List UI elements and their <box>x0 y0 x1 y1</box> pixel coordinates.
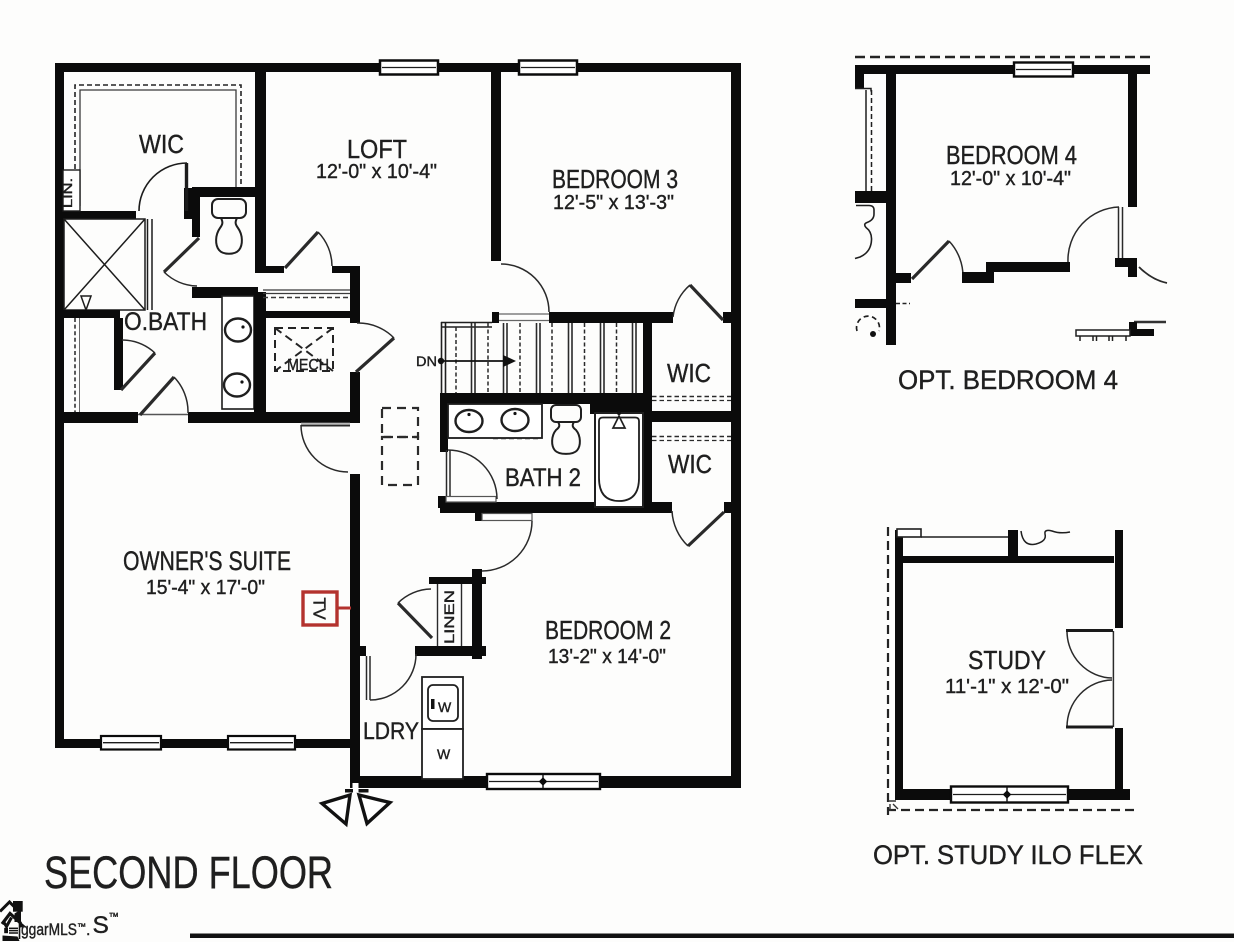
svg-text:LIN.: LIN. <box>63 178 75 208</box>
svg-text:WIC: WIC <box>139 129 184 159</box>
svg-text:O.BATH: O.BATH <box>124 308 207 336</box>
svg-text:BEDROOM 2: BEDROOM 2 <box>545 615 671 645</box>
svg-text:13'-2" x 14'-0": 13'-2" x 14'-0" <box>548 646 666 668</box>
svg-text:LOFT: LOFT <box>347 134 407 164</box>
svg-text:.: . <box>86 922 90 939</box>
svg-text:S: S <box>93 912 109 939</box>
svg-text:15'-4" x 17'-0": 15'-4" x 17'-0" <box>146 577 265 599</box>
svg-text:SECOND FLOOR: SECOND FLOOR <box>44 847 333 898</box>
svg-text:OWNER'S SUITE: OWNER'S SUITE <box>123 546 291 576</box>
svg-text:W: W <box>438 699 452 715</box>
svg-text:BATH 2: BATH 2 <box>505 464 581 492</box>
svg-text:TV: TV <box>310 597 330 620</box>
svg-text:BEDROOM 4: BEDROOM 4 <box>946 140 1077 170</box>
svg-text:OPT. BEDROOM 4: OPT. BEDROOM 4 <box>898 365 1118 395</box>
svg-text:W: W <box>437 746 451 762</box>
svg-text:WIC: WIC <box>668 449 712 479</box>
svg-text:MECH: MECH <box>287 357 329 374</box>
svg-text:™: ™ <box>77 922 86 932</box>
svg-text:DN: DN <box>416 354 437 369</box>
svg-text:12'-5" x 13'-3": 12'-5" x 13'-3" <box>553 192 674 214</box>
svg-text:BEDROOM 3: BEDROOM 3 <box>552 164 678 194</box>
svg-text:ggarMLS: ggarMLS <box>21 921 77 939</box>
svg-text:11'-1" x 12'-0": 11'-1" x 12'-0" <box>945 676 1069 698</box>
svg-text:™: ™ <box>109 911 120 923</box>
svg-text:12'-0" x 10'-4": 12'-0" x 10'-4" <box>950 168 1071 190</box>
svg-text:OPT. STUDY ILO FLEX: OPT. STUDY ILO FLEX <box>873 840 1143 870</box>
svg-text:12'-0" x 10'-4": 12'-0" x 10'-4" <box>316 161 437 183</box>
svg-text:LINEN: LINEN <box>441 590 457 644</box>
svg-text:LDRY: LDRY <box>363 718 419 745</box>
svg-text:WIC: WIC <box>667 358 711 388</box>
svg-text:STUDY: STUDY <box>968 645 1046 675</box>
